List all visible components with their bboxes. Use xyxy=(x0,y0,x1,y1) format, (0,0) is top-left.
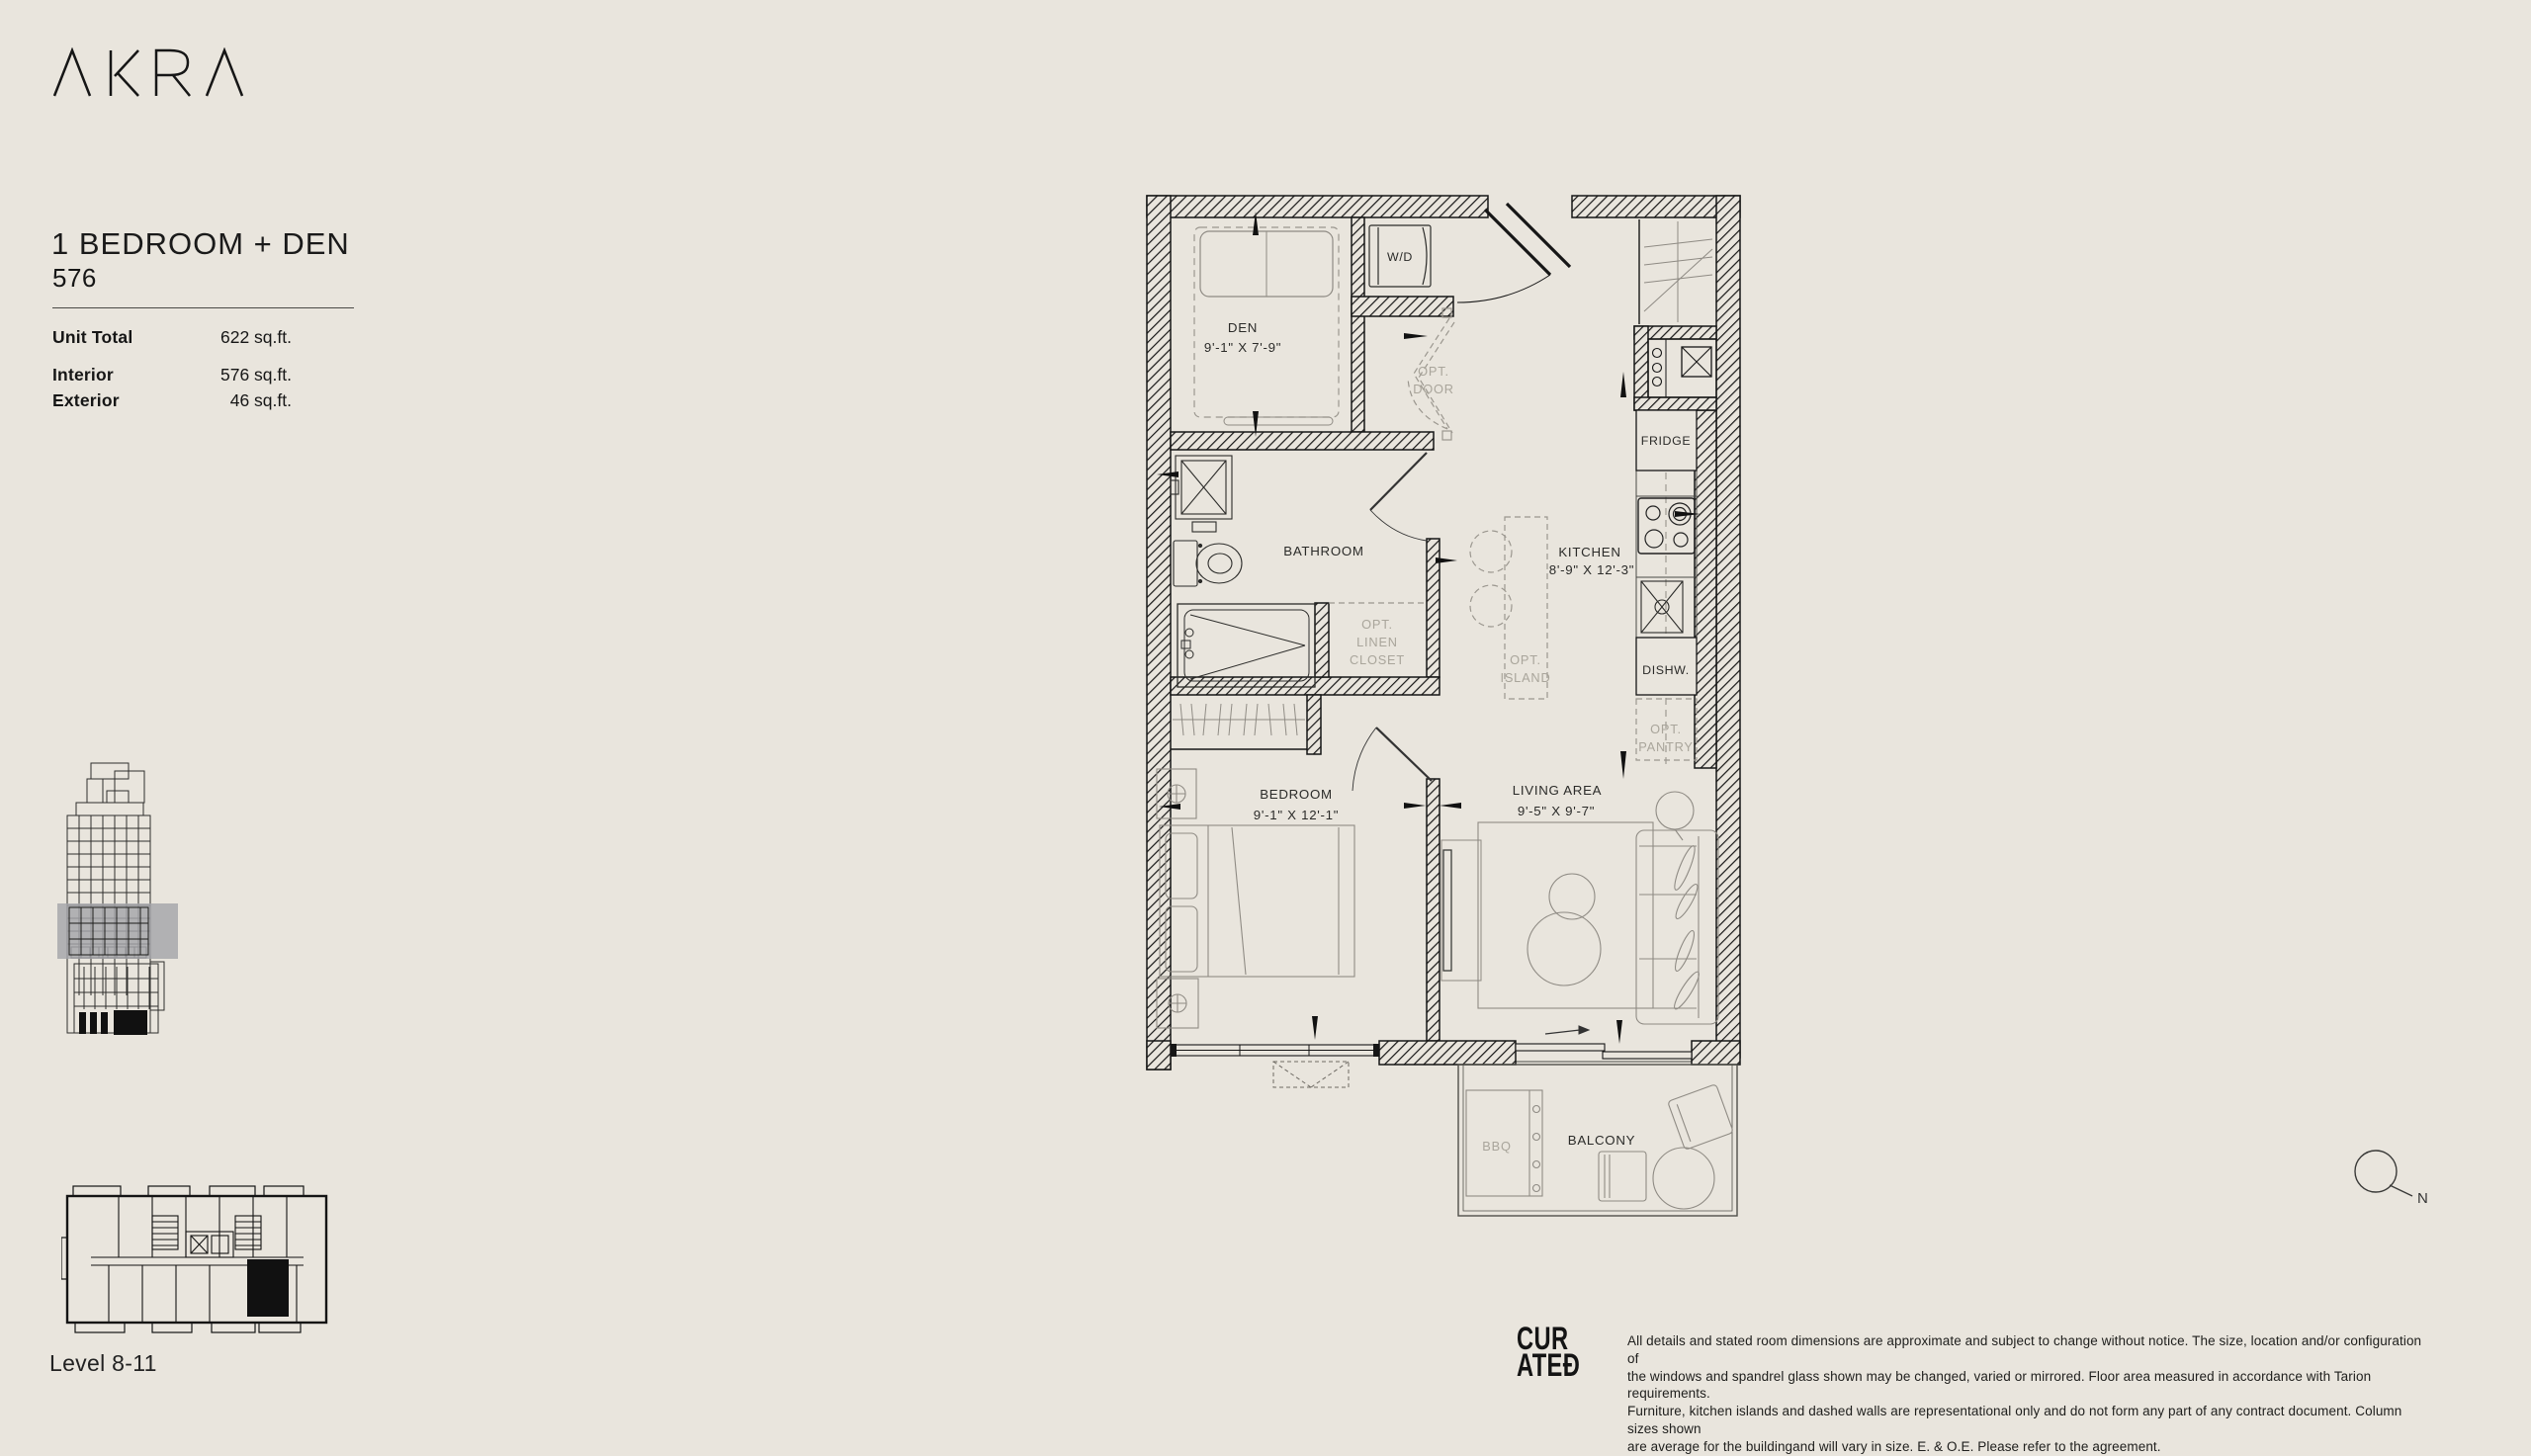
living-furniture xyxy=(1478,792,1718,1024)
brand-logo xyxy=(51,47,245,104)
toilet xyxy=(1174,541,1242,586)
linen-label-3: CLOSET xyxy=(1350,652,1405,667)
kitchen-sink xyxy=(1641,581,1683,633)
kitchen-label: KITCHEN xyxy=(1558,545,1620,559)
fridge-label: FRIDGE xyxy=(1641,434,1691,448)
unit-number: 576 xyxy=(52,263,97,294)
island-label-2: ISLAND xyxy=(1500,670,1550,685)
bathroom-door xyxy=(1370,453,1427,541)
entry-door xyxy=(1457,204,1570,302)
curated-logo-line2: ATEĐ xyxy=(1517,1352,1580,1379)
pantry-label-2: PANTRY xyxy=(1638,739,1694,754)
building-elevation-icon xyxy=(57,733,178,1066)
bedroom-label: BEDROOM xyxy=(1260,787,1333,802)
key-plan-icon xyxy=(61,1176,338,1339)
den-label: DEN xyxy=(1228,320,1258,335)
dishwasher-label: DISHW. xyxy=(1642,663,1690,677)
kitchen-dims: 8'-9" X 12'-3" xyxy=(1549,562,1634,577)
building-elevation-key xyxy=(57,733,178,1071)
area-stats: Unit Total 622 sq.ft. Interior 576 sq.ft… xyxy=(52,327,292,411)
stat-value: 576 sq.ft. xyxy=(220,365,292,385)
stat-row-unit-total: Unit Total 622 sq.ft. xyxy=(52,327,292,348)
level-label: Level 8-11 xyxy=(49,1350,157,1377)
floor-plan-drawing: DEN 9'-1" X 7'-9" W/D OPT. DOOR BATHROOM… xyxy=(1145,188,1742,1232)
stat-value: 622 sq.ft. xyxy=(220,327,292,348)
curated-logo: CUR ATEĐ xyxy=(1517,1326,1580,1379)
den-dims: 9'-1" X 7'-9" xyxy=(1204,340,1281,355)
bedroom-window xyxy=(1171,1044,1379,1087)
wd-label: W/D xyxy=(1387,250,1413,264)
balcony-label: BALCONY xyxy=(1568,1133,1635,1148)
linen-label-1: OPT. xyxy=(1361,617,1393,632)
unit-location-marker xyxy=(247,1259,289,1317)
pantry-label-1: OPT. xyxy=(1650,722,1682,736)
bathroom-label: BATHROOM xyxy=(1283,544,1363,558)
page-title: 1 BEDROOM + DEN xyxy=(51,226,350,262)
disclaimer-line: the windows and spandrel glass shown may… xyxy=(1627,1368,2428,1404)
balcony-sliding-door xyxy=(1516,1044,1692,1062)
stat-label: Exterior xyxy=(52,390,120,411)
linen-label-2: LINEN xyxy=(1356,635,1398,649)
disclaimer-line: are average for the buildingand will var… xyxy=(1627,1438,2428,1456)
stat-row-exterior: Exterior 46 sq.ft. xyxy=(52,390,292,411)
akra-logo-icon xyxy=(51,47,245,99)
bedroom-dims: 9'-1" X 12'-1" xyxy=(1254,808,1339,822)
living-dims: 9'-5" X 9'-7" xyxy=(1518,804,1595,818)
opt-door-label-2: DOOR xyxy=(1413,382,1454,396)
shaft-cabinet xyxy=(1648,339,1716,397)
living-label: LIVING AREA xyxy=(1513,783,1602,798)
stat-label: Interior xyxy=(52,365,114,385)
opt-door-label-1: OPT. xyxy=(1418,364,1449,379)
tv-console xyxy=(1441,840,1481,981)
key-plan xyxy=(61,1176,338,1344)
north-compass: N xyxy=(2333,1135,2442,1211)
stat-value: 46 sq.ft. xyxy=(230,390,292,411)
floor-plan: DEN 9'-1" X 7'-9" W/D OPT. DOOR BATHROOM… xyxy=(1145,188,1742,1237)
disclaimer: All details and stated room dimensions a… xyxy=(1627,1332,2428,1456)
level-highlight-band xyxy=(57,903,178,959)
bathtub xyxy=(1178,604,1315,687)
divider-rule xyxy=(52,307,354,308)
bbq-label: BBQ xyxy=(1482,1139,1511,1154)
north-arrow-icon: N xyxy=(2333,1135,2442,1206)
north-label: N xyxy=(2417,1190,2428,1206)
stat-label: Unit Total xyxy=(52,327,132,348)
slide-direction-arrow xyxy=(1545,1026,1589,1034)
stat-row-interior: Interior 576 sq.ft. xyxy=(52,365,292,385)
entry-closet xyxy=(1639,219,1712,324)
disclaimer-line: Furniture, kitchen islands and dashed wa… xyxy=(1627,1403,2428,1438)
bathroom-vanity xyxy=(1171,456,1232,532)
bedroom-closet xyxy=(1171,704,1307,749)
bedroom-door xyxy=(1353,728,1432,791)
den-daybed xyxy=(1194,227,1339,425)
island-label-1: OPT. xyxy=(1510,652,1541,667)
disclaimer-line: All details and stated room dimensions a… xyxy=(1627,1332,2428,1368)
